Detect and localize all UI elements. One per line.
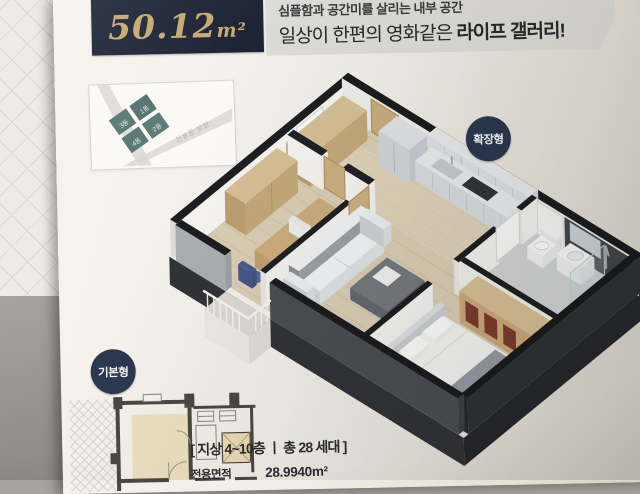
unit-info-block: [ 지상 4~10층 ㅣ 총 28 세대 ] 전용면적 28.9940m² (190, 436, 347, 482)
badge-expanded-label: 확장형 (473, 130, 504, 147)
badge-basic-label: 기본형 (98, 363, 129, 380)
plan-room-beige (132, 414, 189, 481)
exclusive-area-value: 28.9940m² (265, 464, 328, 480)
plan-balcony-hatch (69, 399, 117, 492)
brochure-page: 18 50.12m² 심플함과 공간미를 살리는 내부 공간 일상이 한편의 영… (53, 0, 640, 494)
exclusive-area-label: 전용면적 (191, 466, 232, 483)
floors-households-line: [ 지상 4~10층 ㅣ 총 28 세대 ] (190, 436, 347, 459)
